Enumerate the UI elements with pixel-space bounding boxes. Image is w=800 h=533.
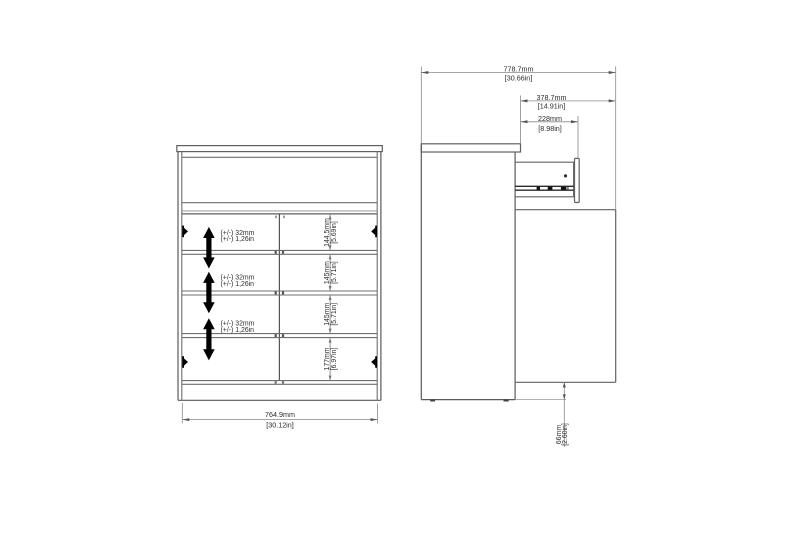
svg-text:[2.60in]: [2.60in] (562, 423, 569, 446)
svg-text:778.7mm: 778.7mm (504, 65, 534, 74)
svg-text:[30.12in]: [30.12in] (266, 421, 294, 430)
svg-text:[5.69in]: [5.69in] (331, 221, 338, 244)
svg-text:[8.98in]: [8.98in] (538, 124, 562, 133)
svg-text:[30.66in]: [30.66in] (505, 73, 533, 82)
svg-text:(+/-) 1,26in: (+/-) 1,26in (221, 236, 255, 243)
svg-text:[14.91in]: [14.91in] (538, 102, 566, 111)
svg-text:(+/-) 1,26in: (+/-) 1,26in (221, 281, 255, 288)
svg-text:764.9mm: 764.9mm (265, 410, 295, 419)
svg-text:[5.71in]: [5.71in] (331, 261, 338, 284)
svg-text:(+/-) 1,26in: (+/-) 1,26in (221, 327, 255, 334)
svg-text:[6.97in]: [6.97in] (331, 348, 338, 371)
svg-text:[5.71in]: [5.71in] (331, 303, 338, 326)
svg-text:228mm: 228mm (538, 114, 562, 123)
